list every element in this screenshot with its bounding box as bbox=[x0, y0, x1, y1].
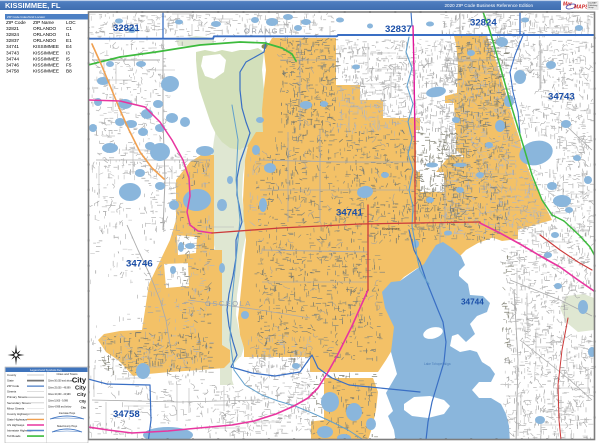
svg-text:State Highways: State Highways bbox=[7, 417, 28, 421]
svg-text:Streets: Streets bbox=[7, 390, 17, 394]
svg-text:Primary Streets: Primary Streets bbox=[7, 395, 27, 399]
svg-text:KISSIMMEE: KISSIMMEE bbox=[33, 50, 59, 55]
svg-text:34744: 34744 bbox=[6, 56, 19, 61]
svg-text:ZIP Name: ZIP Name bbox=[33, 20, 54, 25]
svg-text:ZIP Code: ZIP Code bbox=[7, 384, 20, 388]
svg-text:34741: 34741 bbox=[336, 208, 363, 219]
svg-text:City: City bbox=[79, 400, 86, 404]
svg-text:Cities 5,000 - 9,999: Cities 5,000 - 9,999 bbox=[48, 400, 69, 403]
svg-text:F5: F5 bbox=[66, 63, 72, 68]
svg-text:Cities 50,000 and above: Cities 50,000 and above bbox=[48, 380, 73, 383]
svg-text:Minor Streets: Minor Streets bbox=[7, 406, 25, 410]
svg-text:32824: 32824 bbox=[470, 18, 497, 29]
svg-text:State/County Hwys: State/County Hwys bbox=[57, 425, 78, 428]
svg-text:C1: C1 bbox=[66, 26, 72, 31]
svg-text:34744: 34744 bbox=[461, 298, 484, 307]
svg-text:I1: I1 bbox=[66, 32, 70, 37]
svg-text:KISSIMMEE: KISSIMMEE bbox=[33, 69, 59, 74]
svg-text:32821: 32821 bbox=[6, 26, 19, 31]
svg-text:ZIP Code Index/Grid Locator: ZIP Code Index/Grid Locator bbox=[7, 15, 45, 19]
svg-text:Kissimmee: Kissimmee bbox=[382, 227, 400, 231]
svg-text:KISSIMMEE, FL: KISSIMMEE, FL bbox=[5, 1, 61, 10]
svg-text:E4: E4 bbox=[66, 44, 72, 49]
svg-text:City: City bbox=[72, 376, 87, 385]
svg-text:Toll Roads: Toll Roads bbox=[7, 434, 21, 438]
svg-text:KISSIMMEE: KISSIMMEE bbox=[33, 63, 59, 68]
svg-text:City: City bbox=[75, 386, 87, 392]
svg-text:ZIP Code: ZIP Code bbox=[6, 20, 26, 25]
svg-text:County: County bbox=[7, 373, 17, 377]
svg-text:32837: 32837 bbox=[6, 38, 19, 43]
svg-text:34758: 34758 bbox=[6, 69, 19, 74]
svg-text:34741: 34741 bbox=[6, 44, 19, 49]
svg-text:County Highways: County Highways bbox=[7, 412, 30, 416]
svg-text:Lake Tohopekaliga: Lake Tohopekaliga bbox=[424, 362, 451, 366]
svg-text:Cities 4,999 and below: Cities 4,999 and below bbox=[48, 406, 72, 409]
svg-text:B8: B8 bbox=[66, 69, 72, 74]
svg-text:MAPS: MAPS bbox=[574, 5, 589, 11]
svg-text:Cities 25,000 - 49,999: Cities 25,000 - 49,999 bbox=[48, 387, 71, 390]
svg-text:KISSIMMEE: KISSIMMEE bbox=[33, 44, 59, 49]
svg-text:KISSIMMEE: KISSIMMEE bbox=[33, 56, 59, 61]
svg-text:US Highways: US Highways bbox=[7, 423, 25, 427]
svg-text:34746: 34746 bbox=[6, 63, 19, 68]
svg-text:34758: 34758 bbox=[113, 409, 140, 420]
svg-text:I3: I3 bbox=[66, 50, 70, 55]
svg-text:ORLANDO: ORLANDO bbox=[33, 38, 57, 43]
svg-text:32824: 32824 bbox=[6, 32, 19, 37]
svg-text:34746: 34746 bbox=[126, 259, 153, 270]
svg-text:E1: E1 bbox=[66, 38, 72, 43]
svg-text:I5: I5 bbox=[66, 56, 70, 61]
svg-text:32837: 32837 bbox=[385, 24, 412, 35]
svg-text:Interstate Hwys: Interstate Hwys bbox=[59, 412, 76, 415]
svg-text:City: City bbox=[77, 392, 86, 398]
svg-text:State: State bbox=[7, 379, 14, 383]
svg-text:2020 ZIP Code Business Referen: 2020 ZIP Code Business Reference Edition bbox=[444, 3, 533, 8]
svg-text:ORLANDO: ORLANDO bbox=[33, 26, 57, 31]
svg-text:LOC: LOC bbox=[66, 20, 76, 25]
svg-text:34743: 34743 bbox=[548, 92, 575, 103]
svg-text:OSCEOLA: OSCEOLA bbox=[205, 299, 252, 308]
svg-text:ORANGE: ORANGE bbox=[244, 27, 286, 36]
svg-text:34743: 34743 bbox=[6, 50, 19, 55]
svg-text:Group: Group bbox=[588, 7, 594, 9]
svg-text:ORLANDO: ORLANDO bbox=[33, 32, 57, 37]
svg-text:City: City bbox=[81, 406, 87, 410]
svg-text:Cities 10,000 - 24,999: Cities 10,000 - 24,999 bbox=[48, 393, 71, 396]
svg-text:32821: 32821 bbox=[113, 23, 140, 34]
